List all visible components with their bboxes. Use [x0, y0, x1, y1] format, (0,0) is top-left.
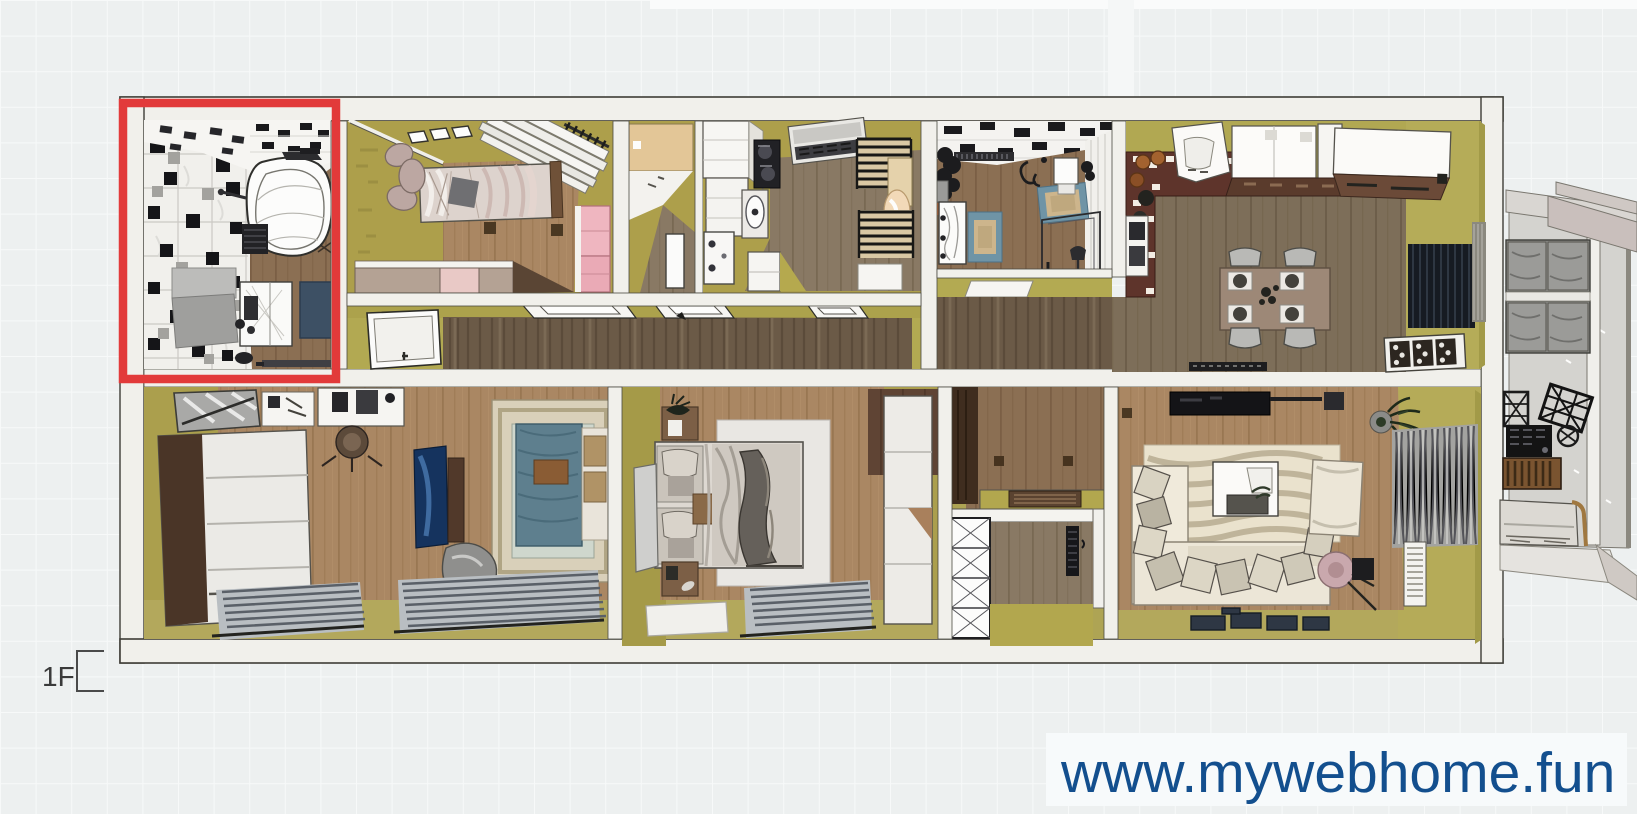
- svg-text:www.mywebhome.fun: www.mywebhome.fun: [1060, 741, 1615, 805]
- svg-text:1F: 1F: [42, 661, 75, 692]
